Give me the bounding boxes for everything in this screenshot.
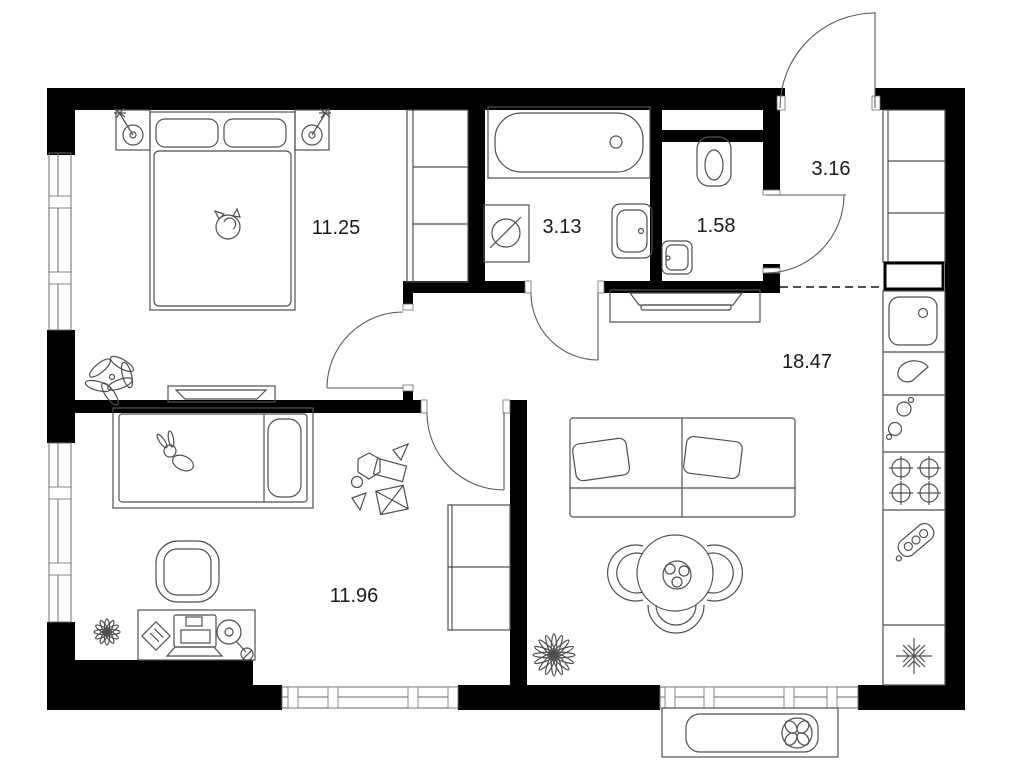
room-label-bedroom: 11.25 — [312, 218, 361, 238]
room-label-living-kitchen: 18.47 — [782, 352, 832, 372]
kitchen-sink-icon — [889, 297, 937, 345]
bunny-toy-icon — [155, 431, 196, 474]
armchair — [156, 541, 219, 602]
desk — [138, 610, 255, 660]
tv-console — [610, 290, 760, 322]
cooktop-icon — [889, 456, 941, 505]
kids-room-bottom-window — [282, 687, 458, 708]
sleeping-cat-icon — [215, 209, 240, 239]
notepad-icon — [142, 622, 170, 650]
dining-table — [637, 535, 713, 611]
floor-plan: 11.25 3.13 1.58 3.16 18.47 11.96 — [0, 0, 1017, 768]
kids-room-plant-icon — [94, 619, 120, 645]
bathroom-door — [531, 293, 598, 360]
small-basin-icon — [662, 241, 692, 274]
bathroom-furniture — [484, 107, 652, 262]
bedroom-furniture — [84, 108, 468, 407]
drainer-icon — [898, 361, 928, 382]
kids-bed — [113, 408, 313, 508]
fan-icon — [782, 718, 812, 748]
hallway-closet — [883, 110, 945, 262]
laptop-icon — [167, 615, 222, 656]
nightstand-left — [114, 108, 150, 150]
double-bed — [150, 112, 295, 310]
toilet-icon — [697, 137, 731, 186]
room-label-kids-room: 11.96 — [330, 586, 379, 606]
tall-cabinet — [448, 505, 510, 630]
toilet-furniture — [662, 137, 731, 274]
toilet-door — [766, 195, 846, 273]
windows — [49, 153, 858, 708]
entrance-door — [780, 12, 875, 108]
sofa — [570, 418, 795, 517]
wash-basin-icon — [612, 204, 652, 258]
bedroom-wardrobe — [407, 110, 468, 282]
room-label-toilet: 1.58 — [697, 216, 736, 236]
desk-lamp-icon — [217, 620, 253, 660]
kids-room-furniture — [94, 408, 510, 660]
fittings-icon — [887, 398, 914, 440]
living-room-bottom-window — [660, 687, 858, 708]
room-label-bathroom: 3.13 — [543, 217, 582, 237]
fridge-snowflake-icon — [896, 638, 932, 674]
duct-shaft — [885, 263, 943, 289]
bedroom-window — [49, 153, 71, 330]
washing-machine-icon — [484, 205, 529, 262]
hallway-furniture — [883, 110, 945, 289]
toy-blocks-icon — [352, 444, 409, 515]
dresser — [168, 386, 275, 402]
room-label-hallway: 3.16 — [812, 159, 851, 179]
ac-unit — [662, 708, 838, 757]
floor-plan-drawing — [0, 0, 1017, 768]
nightstand-right — [295, 108, 331, 150]
bathtub-icon — [488, 107, 650, 178]
bedroom-door — [327, 312, 403, 388]
small-appliance-icon — [889, 520, 937, 564]
kids-room-door — [427, 413, 504, 490]
bedroom-plant-icon — [84, 354, 135, 408]
living-room-furniture — [533, 290, 795, 676]
kids-room-window — [49, 443, 71, 622]
kitchen-units — [883, 291, 945, 685]
living-room-plant-icon — [533, 634, 575, 676]
